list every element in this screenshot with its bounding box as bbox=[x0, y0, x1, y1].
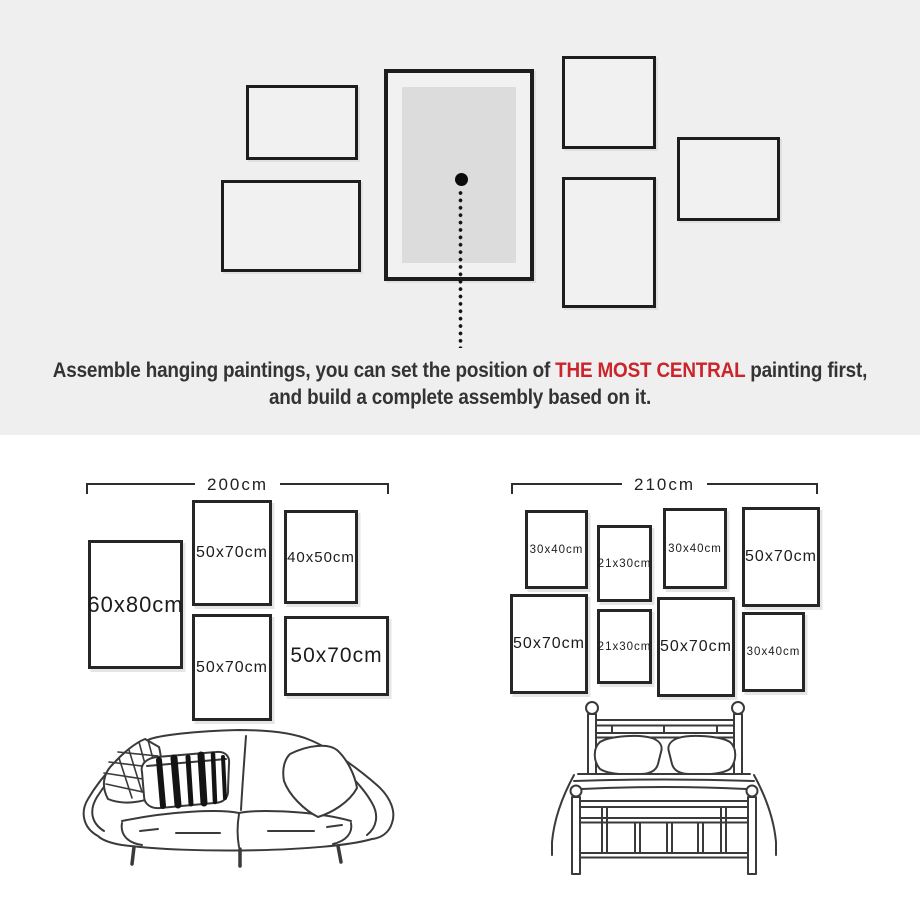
size-label: 21x30cm bbox=[598, 558, 652, 570]
plan-frame: 50x70cm bbox=[192, 614, 272, 721]
bed-illustration bbox=[540, 694, 788, 880]
dimension-label: 210cm bbox=[511, 475, 818, 495]
plan-frame: 50x70cm bbox=[284, 616, 389, 696]
size-label: 50x70cm bbox=[196, 659, 268, 677]
wall-frame bbox=[677, 137, 780, 221]
wall-frame bbox=[562, 177, 656, 308]
highlight-text: THE MOST CENTRAL bbox=[555, 359, 745, 382]
plan-frame: 40x50cm bbox=[284, 510, 358, 604]
dimension-line: 210cm bbox=[511, 483, 818, 497]
plan-frame: 21x30cm bbox=[597, 525, 652, 602]
sofa-illustration bbox=[78, 726, 400, 868]
plan-frame: 30x40cm bbox=[742, 612, 805, 692]
plan-frame: 21x30cm bbox=[597, 609, 652, 684]
plan-frame: 50x70cm bbox=[510, 594, 588, 694]
size-label: 50x70cm bbox=[745, 548, 817, 566]
dimension-label: 200cm bbox=[86, 475, 389, 495]
size-label: 40x50cm bbox=[287, 549, 355, 566]
plan-frame: 50x70cm bbox=[742, 507, 820, 607]
plan-frame: 30x40cm bbox=[663, 508, 727, 589]
size-label: 30x40cm bbox=[747, 646, 801, 658]
instruction-line2: and build a complete assembly based on i… bbox=[269, 386, 651, 409]
size-label: 50x70cm bbox=[290, 644, 382, 668]
wall-frame bbox=[221, 180, 361, 272]
wall-frame bbox=[562, 56, 656, 149]
plan-frame: 30x40cm bbox=[525, 510, 588, 589]
guide-dotted-line bbox=[458, 191, 463, 348]
size-label: 60x80cm bbox=[87, 592, 183, 618]
center-anchor-dot bbox=[455, 173, 468, 186]
instruction-text: Assemble hanging paintings, you can set … bbox=[46, 357, 874, 411]
size-label: 30x40cm bbox=[668, 543, 722, 555]
plan-frame: 50x70cm bbox=[657, 597, 735, 697]
plan-frame: 60x80cm bbox=[88, 540, 183, 669]
dimension-line: 200cm bbox=[86, 483, 389, 497]
size-label: 50x70cm bbox=[660, 638, 732, 656]
size-label: 21x30cm bbox=[598, 641, 652, 653]
plan-frame: 50x70cm bbox=[192, 500, 272, 606]
wall-frame bbox=[246, 85, 358, 160]
instruction-line1-prefix: Assemble hanging paintings, you can set … bbox=[53, 359, 555, 382]
size-label: 30x40cm bbox=[530, 544, 584, 556]
wall-preview-panel: Assemble hanging paintings, you can set … bbox=[0, 0, 920, 435]
poster-canvas: Assemble hanging paintings, you can set … bbox=[0, 0, 920, 920]
size-label: 50x70cm bbox=[513, 635, 585, 653]
size-label: 50x70cm bbox=[196, 544, 268, 562]
instruction-line1-suffix: painting first, bbox=[745, 359, 867, 382]
